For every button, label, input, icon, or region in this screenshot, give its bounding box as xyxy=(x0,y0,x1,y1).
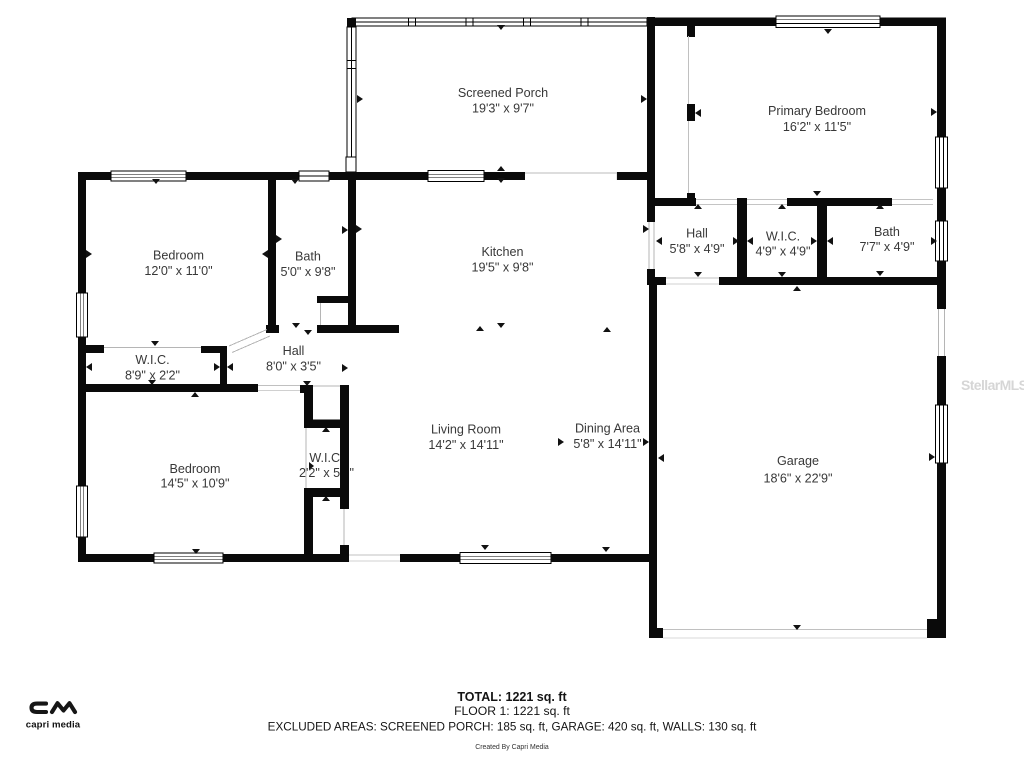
svg-text:8'0" x 3'5": 8'0" x 3'5" xyxy=(266,360,321,374)
svg-text:Bath: Bath xyxy=(874,225,900,239)
svg-text:Living Room: Living Room xyxy=(431,423,501,437)
svg-text:W.I.C.: W.I.C. xyxy=(766,230,800,244)
svg-text:StellarMLS: StellarMLS xyxy=(961,377,1024,393)
svg-text:Kitchen: Kitchen xyxy=(481,245,523,259)
svg-text:Created By Capri Media: Created By Capri Media xyxy=(475,744,549,751)
svg-text:Screened Porch: Screened Porch xyxy=(458,86,548,100)
svg-text:14'5" x 10'9": 14'5" x 10'9" xyxy=(160,477,229,491)
svg-text:12'0" x 11'0": 12'0" x 11'0" xyxy=(144,264,212,278)
svg-text:5'0" x 9'8": 5'0" x 9'8" xyxy=(280,265,335,279)
svg-text:W.I.C.: W.I.C. xyxy=(309,451,343,465)
svg-text:TOTAL: 1221 sq. ft: TOTAL: 1221 sq. ft xyxy=(457,690,567,704)
svg-text:5'8" x 14'11": 5'8" x 14'11" xyxy=(573,437,641,451)
svg-text:Dining Area: Dining Area xyxy=(575,422,640,436)
svg-text:5'8" x 4'9": 5'8" x 4'9" xyxy=(669,242,724,256)
svg-text:Bedroom: Bedroom xyxy=(169,462,220,476)
svg-text:EXCLUDED AREAS: SCREENED PORCH: EXCLUDED AREAS: SCREENED PORCH: 185 sq. … xyxy=(268,721,757,734)
svg-text:14'2" x 14'11": 14'2" x 14'11" xyxy=(428,438,503,452)
svg-text:Primary Bedroom: Primary Bedroom xyxy=(768,104,866,118)
svg-text:Bath: Bath xyxy=(295,250,321,264)
svg-text:7'7" x 4'9": 7'7" x 4'9" xyxy=(859,240,914,254)
svg-text:FLOOR 1: 1221 sq. ft: FLOOR 1: 1221 sq. ft xyxy=(454,704,570,718)
svg-text:Hall: Hall xyxy=(283,344,305,358)
svg-text:4'9" x 4'9": 4'9" x 4'9" xyxy=(755,245,810,259)
svg-text:Hall: Hall xyxy=(686,227,708,241)
svg-text:W.I.C.: W.I.C. xyxy=(135,353,169,367)
svg-text:capri media: capri media xyxy=(26,720,81,731)
svg-text:16'2" x 11'5": 16'2" x 11'5" xyxy=(783,120,851,134)
svg-text:19'5" x 9'8": 19'5" x 9'8" xyxy=(471,261,533,275)
svg-text:18'6" x 22'9": 18'6" x 22'9" xyxy=(763,472,832,486)
svg-text:Garage: Garage xyxy=(777,454,819,468)
svg-text:Bedroom: Bedroom xyxy=(153,249,204,263)
svg-text:8'9" x 2'2": 8'9" x 2'2" xyxy=(125,369,180,383)
svg-text:19'3" x 9'7": 19'3" x 9'7" xyxy=(472,102,534,116)
